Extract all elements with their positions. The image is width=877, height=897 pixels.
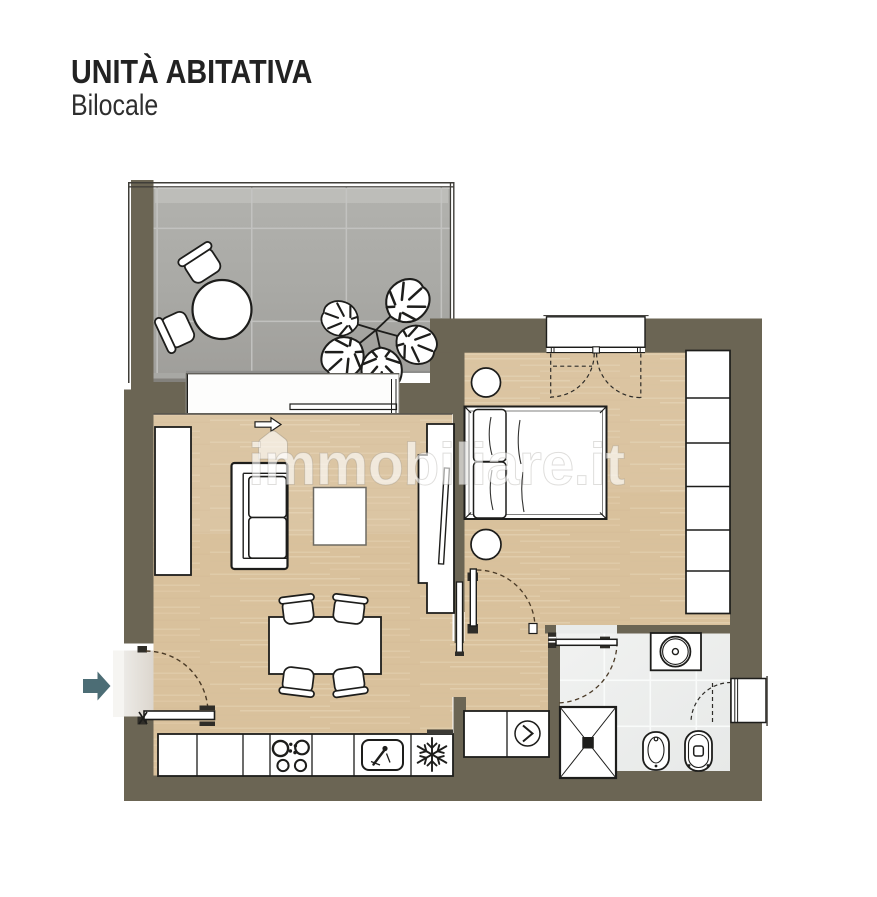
svg-text:immobiliare.it: immobiliare.it [248,432,625,498]
